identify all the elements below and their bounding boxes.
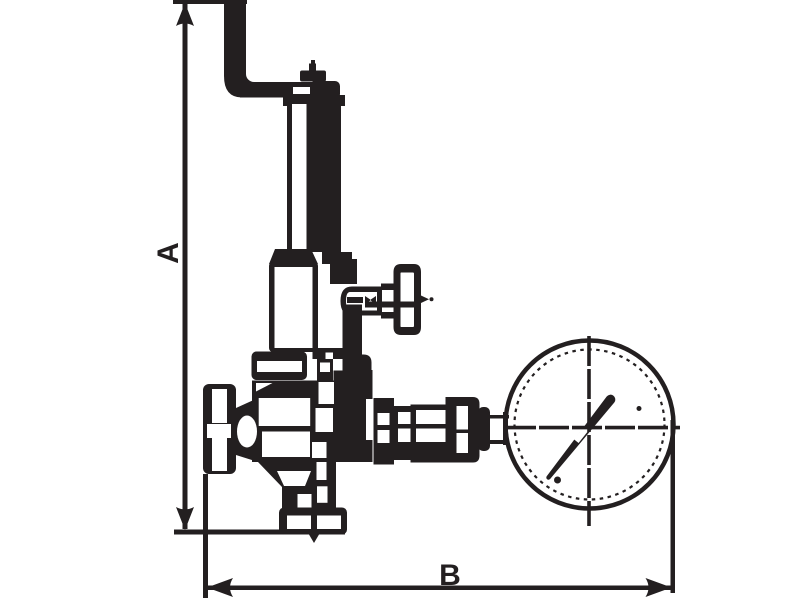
svg-text:A: A xyxy=(152,242,185,264)
svg-text:B: B xyxy=(439,559,461,592)
